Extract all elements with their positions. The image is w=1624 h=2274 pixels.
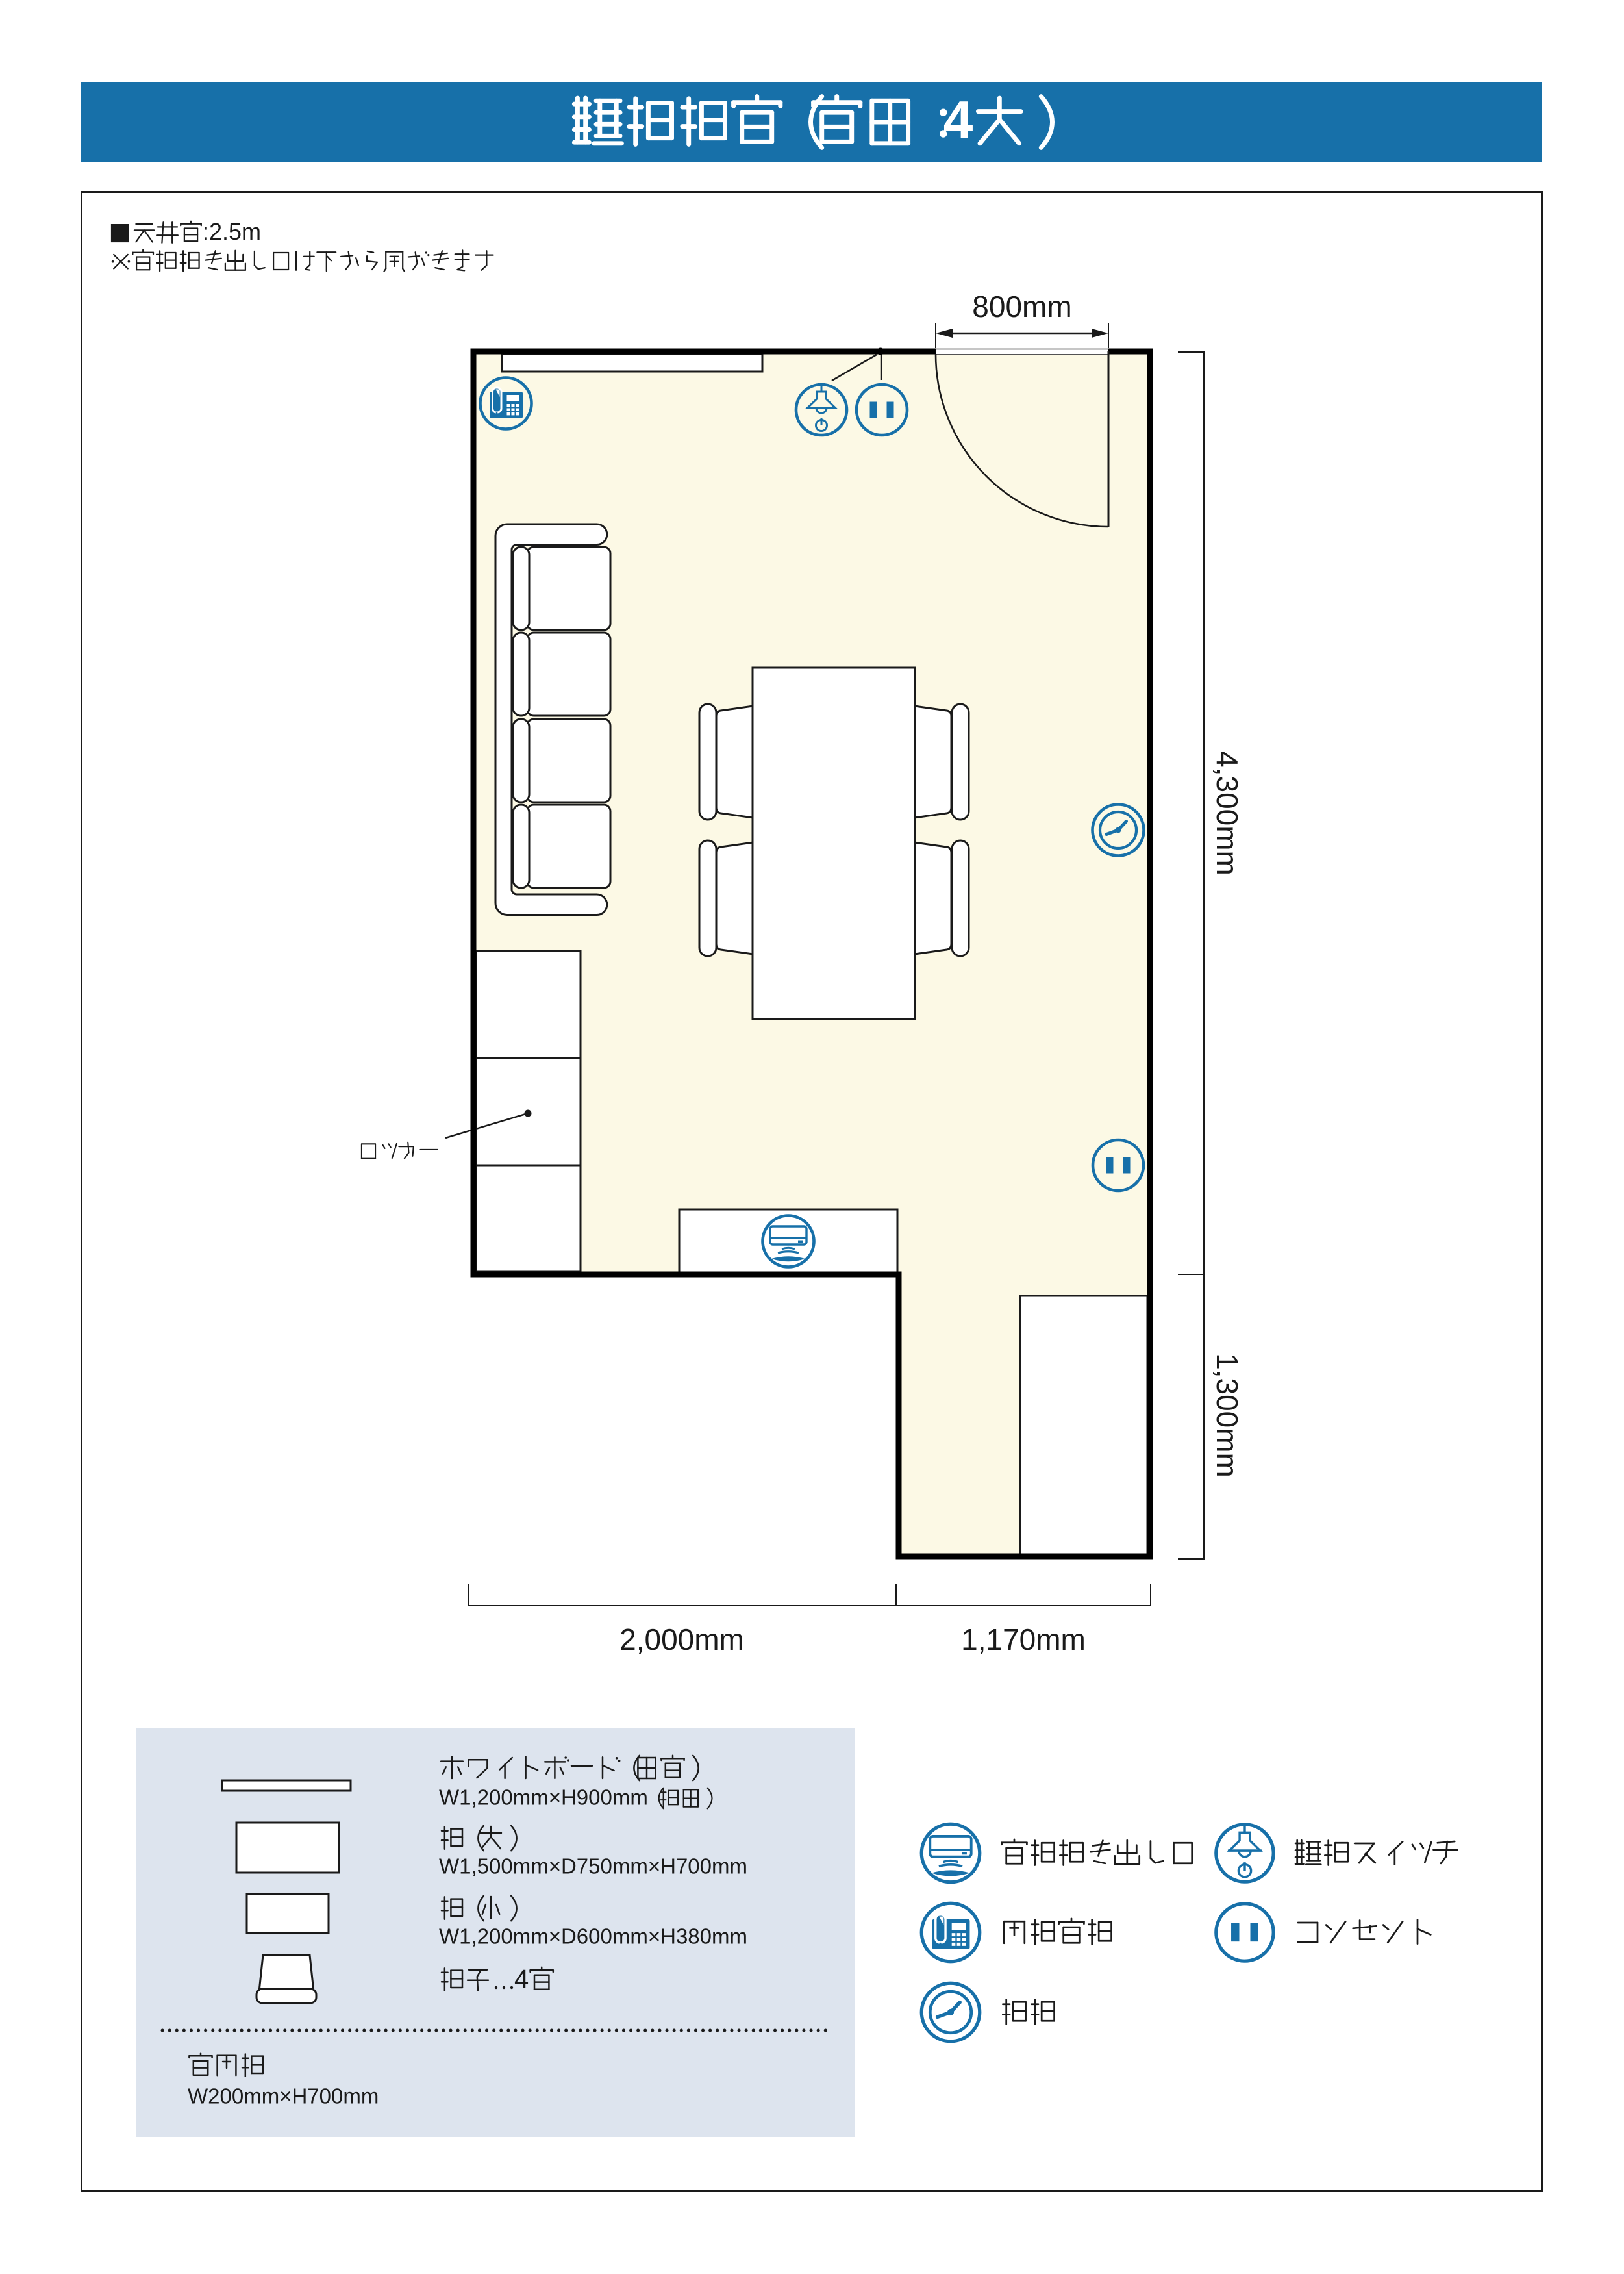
svg-text::2.5m: :2.5m <box>203 218 261 245</box>
svg-text:W1,200mm×D600mm×H380mm: W1,200mm×D600mm×H380mm <box>439 1924 747 1948</box>
svg-text:1,170mm: 1,170mm <box>961 1623 1086 1656</box>
svg-text:4,300mm: 4,300mm <box>1210 751 1244 876</box>
svg-text:1,300mm: 1,300mm <box>1210 1353 1244 1478</box>
svg-text:4: 4 <box>514 1965 529 1993</box>
svg-text:800mm: 800mm <box>972 290 1071 323</box>
svg-text:W1,200mm×H900mm: W1,200mm×H900mm <box>439 1785 648 1809</box>
svg-text:W200mm×H700mm: W200mm×H700mm <box>188 2084 379 2108</box>
svg-text:W1,500mm×D750mm×H700mm: W1,500mm×D750mm×H700mm <box>439 1854 747 1878</box>
svg-text:2,000mm: 2,000mm <box>619 1623 744 1656</box>
svg-text:4: 4 <box>943 91 973 150</box>
